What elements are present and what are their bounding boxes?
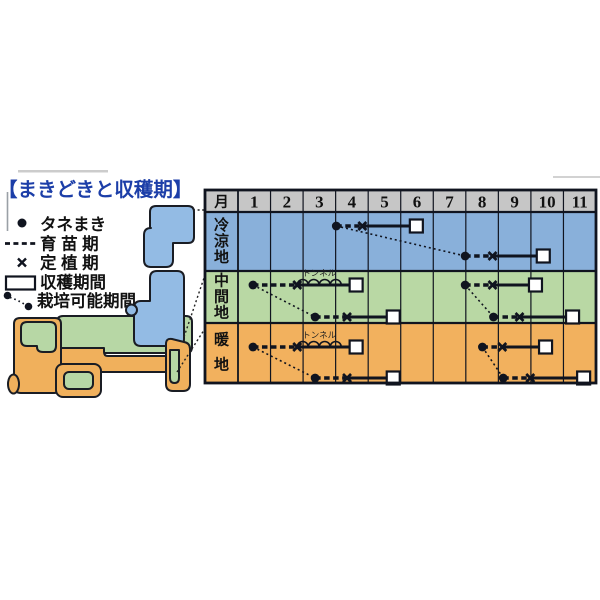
map-kii-peninsula-inner [170,350,179,383]
month-tick-7: 7 [445,193,454,212]
region-label-cool: 涼 [214,232,229,250]
planting-calendar-page: 【まきどきと収穫期】 タネまき 育 苗 期 定 植 期 収穫期間 栽培可能期間 [0,0,600,600]
page-title: 【まきどきと収穫期】 [0,178,192,201]
legend-label-transplant: 定 植 期 [40,253,99,273]
sow-dot [311,313,320,322]
map-sado-island [126,305,137,316]
month-tick-11: 11 [572,193,588,212]
region-label-mid: 中 [214,272,229,290]
harvest-box [410,220,423,233]
region-label-mid: 地 [214,304,229,322]
region-label-cool: 冷 [214,216,229,234]
harvest-box [350,279,363,292]
harvest-box [529,279,542,292]
transplant-x-icon [18,259,26,267]
sow-dot [332,222,341,231]
month-axis-label: 月 [213,194,229,211]
harvest-box-icon [6,277,35,290]
legend-label-sow: タネまき [40,215,106,234]
map-shikoku-inner-mid [64,372,93,389]
month-tick-8: 8 [478,193,487,212]
harvest-box [537,250,550,263]
sow-dot [478,343,487,352]
harvest-box [566,311,579,324]
tunnel-label: トンネル [302,330,336,340]
map-hokkaido-cool-region [144,206,194,267]
month-tick-10: 10 [539,193,556,212]
month-tick-4: 4 [348,193,357,212]
crop-artifact-line-top-right [553,176,600,178]
region-label-warm: 地 [214,356,229,374]
sow-dot [249,343,258,352]
sow-dot [461,281,470,290]
connector-mid [184,272,206,337]
month-tick-5: 5 [380,193,389,212]
planting-calendar-chart: 月1234567891011冷涼地中間地暖地トンネルトンネル [205,190,596,385]
map-small-island [8,375,19,394]
legend-label-range: 栽培可能期間 [37,291,136,311]
sow-dot [249,281,258,290]
sow-dot [489,313,498,322]
map-tohoku-cool-region [134,271,184,346]
month-tick-9: 9 [510,193,519,212]
sow-dot-icon [18,219,27,228]
tunnel-label: トンネル [302,268,336,278]
sow-dot [461,252,470,261]
legend-label-harvest: 収穫期間 [40,273,106,292]
harvest-box [350,341,363,354]
harvest-box [539,341,552,354]
scene-svg: 【まきどきと収穫期】 タネまき 育 苗 期 定 植 期 収穫期間 栽培可能期間 [0,0,600,600]
legend: タネまき 育 苗 期 定 植 期 収穫期間 栽培可能期間 [4,215,136,311]
legend-label-seedling: 育 苗 期 [40,234,99,254]
harvest-box [387,311,400,324]
region-label-cool: 地 [214,248,229,266]
region-label-warm: 暖 [214,331,230,349]
cultivation-range-icon [4,292,33,311]
crop-artifact-line-top-left [18,170,108,173]
month-tick-3: 3 [315,193,324,212]
sow-dot [311,374,320,383]
month-tick-1: 1 [250,193,259,212]
sow-dot [499,374,508,383]
region-label-mid: 間 [214,289,229,306]
month-tick-2: 2 [283,193,292,212]
month-tick-6: 6 [413,193,422,212]
